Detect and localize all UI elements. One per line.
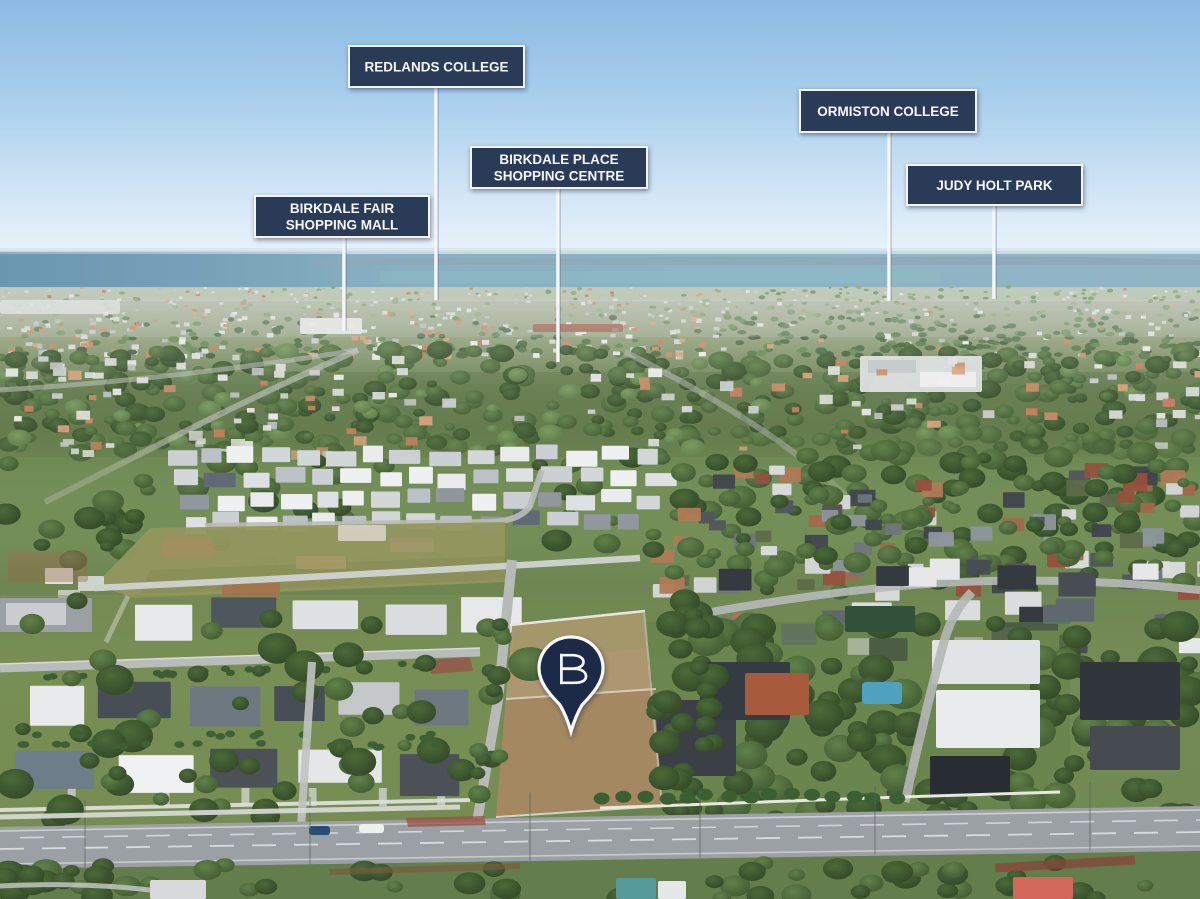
svg-text:SHOPPING CENTRE: SHOPPING CENTRE — [494, 169, 625, 184]
svg-text:BIRKDALE FAIR: BIRKDALE FAIR — [290, 201, 395, 216]
svg-text:BIRKDALE PLACE: BIRKDALE PLACE — [499, 152, 618, 167]
svg-text:ORMISTON COLLEGE: ORMISTON COLLEGE — [817, 104, 959, 119]
svg-text:JUDY HOLT PARK: JUDY HOLT PARK — [936, 178, 1053, 193]
svg-text:REDLANDS COLLEGE: REDLANDS COLLEGE — [364, 59, 508, 74]
svg-text:SHOPPING MALL: SHOPPING MALL — [286, 218, 399, 233]
